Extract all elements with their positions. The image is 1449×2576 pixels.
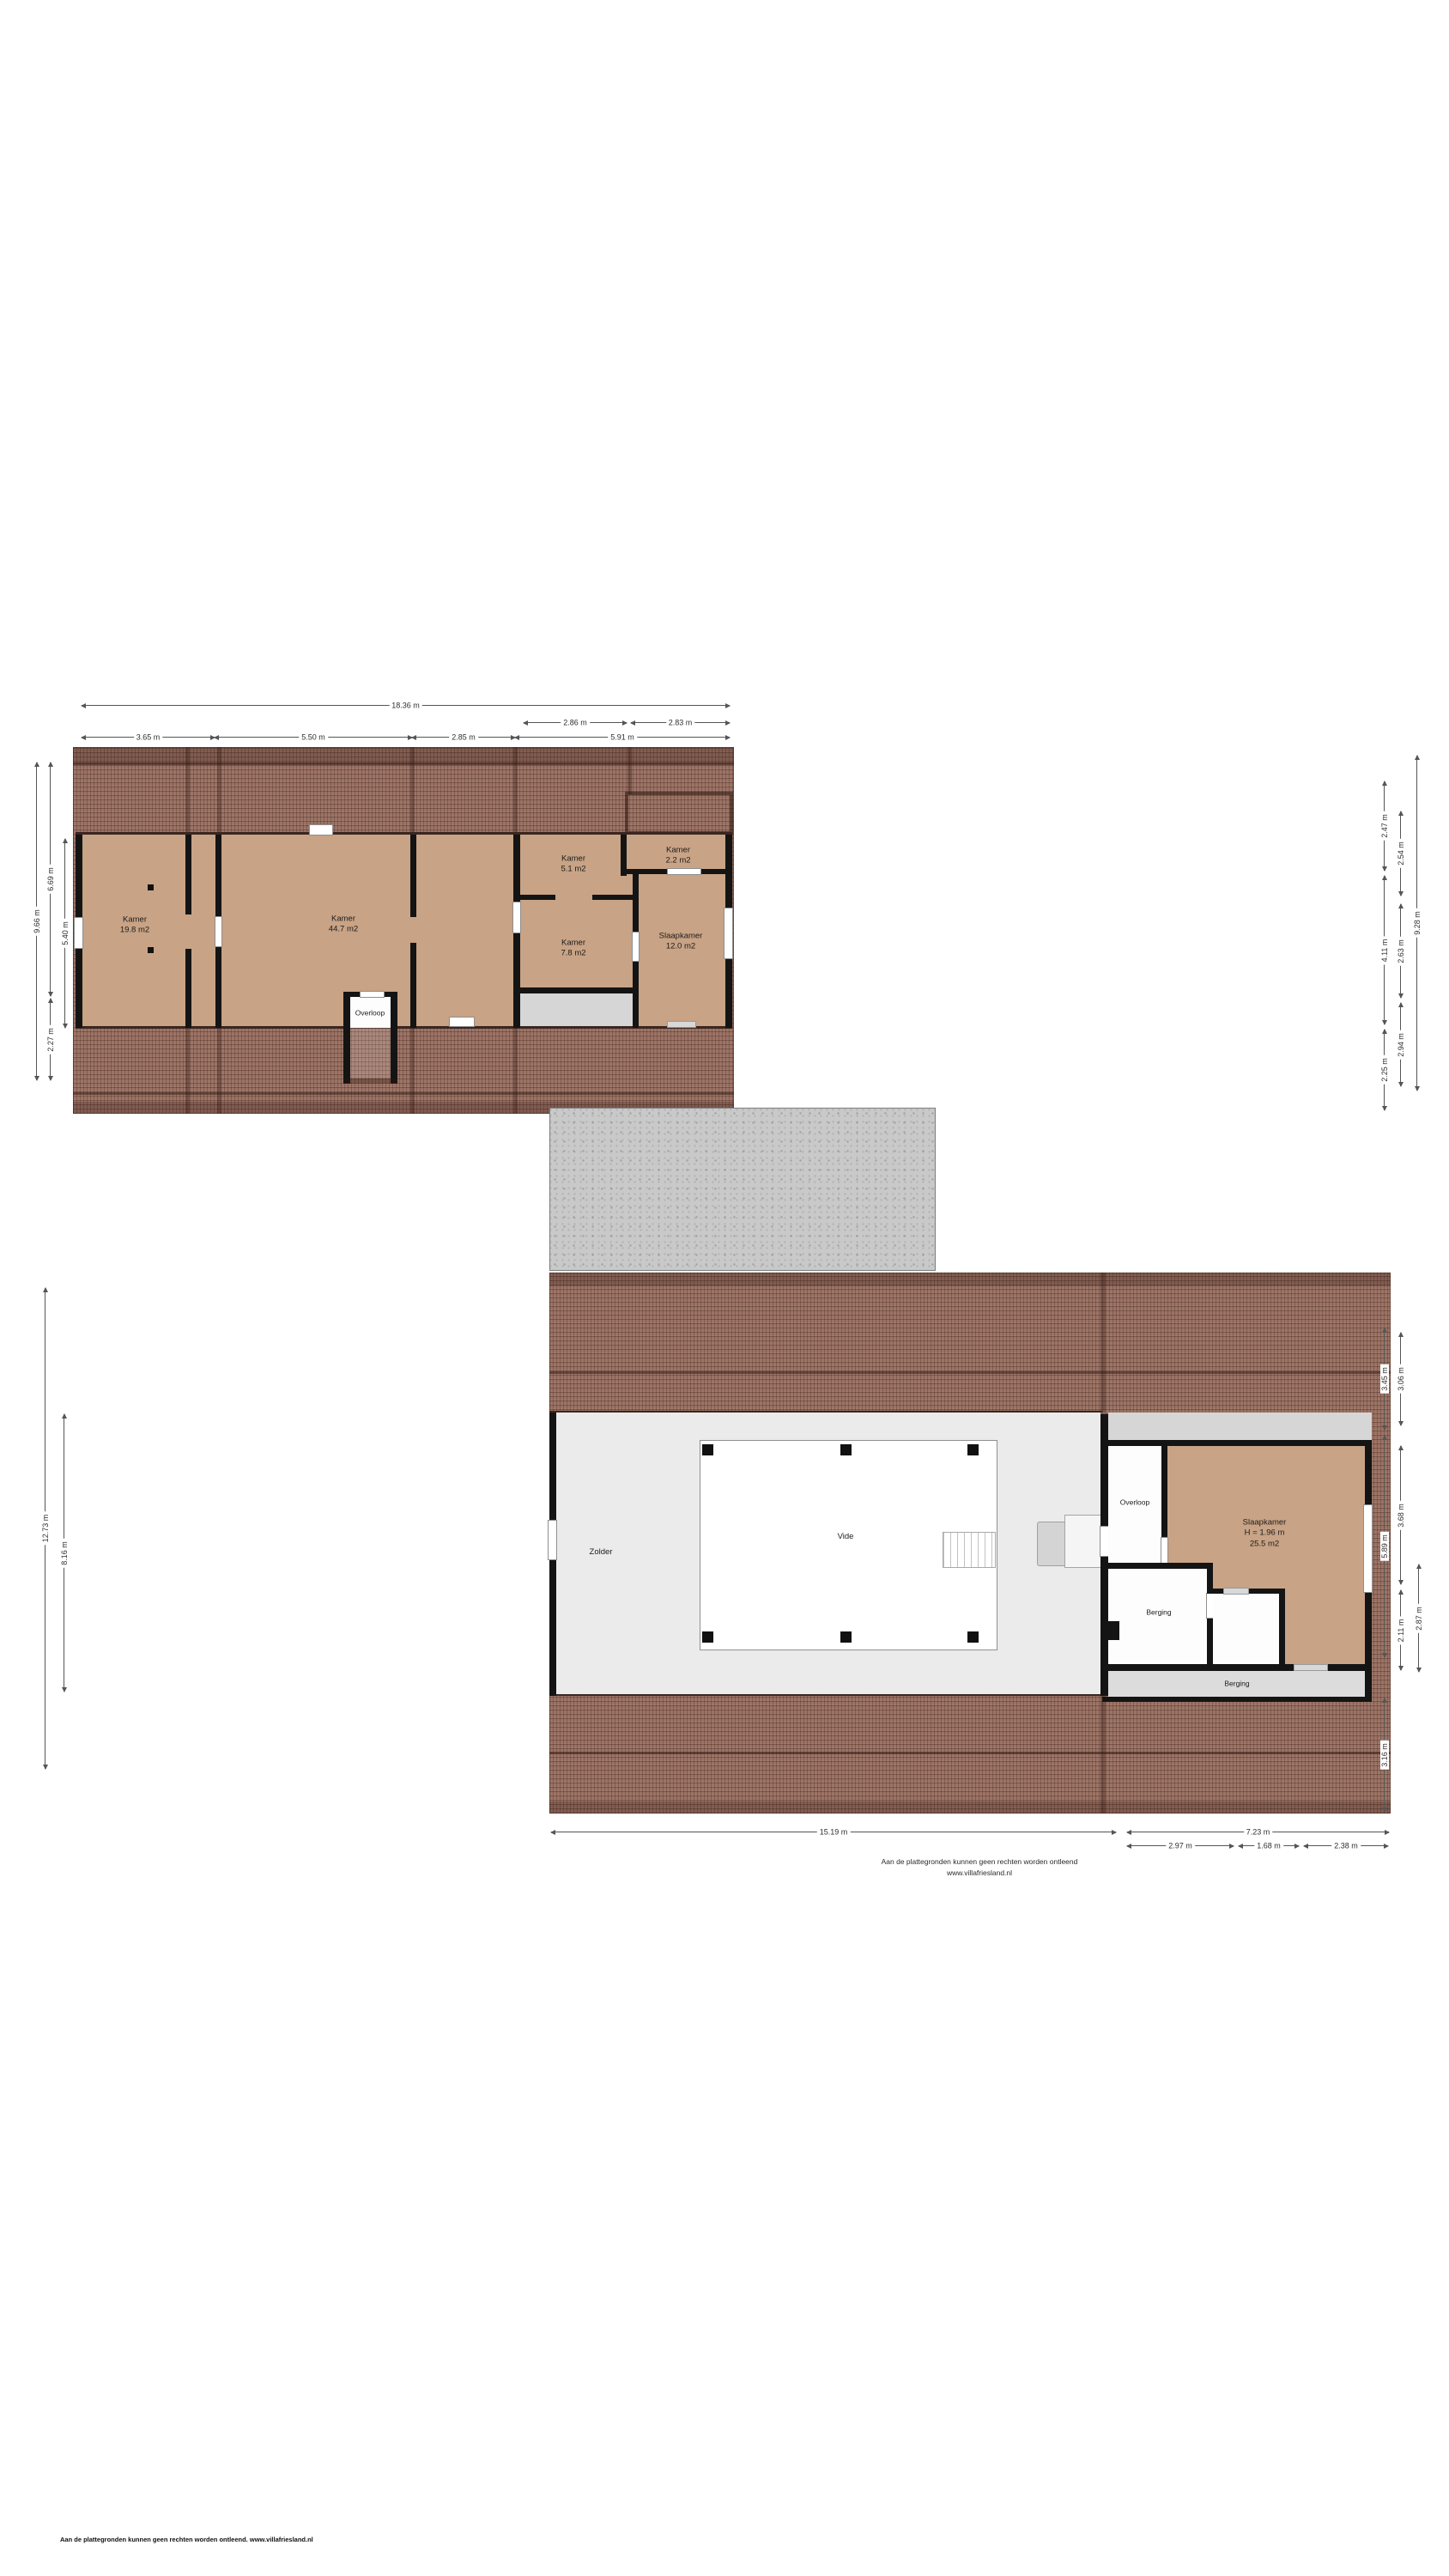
dim-285: 2.85 m [412, 737, 515, 738]
dim-816: 8.16 m [64, 1414, 64, 1692]
dim-368: 3.68 m [1400, 1446, 1401, 1584]
dim-1273: 12.73 m [45, 1288, 45, 1769]
roof-window [309, 824, 333, 835]
dim-238: 2.38 m [1304, 1845, 1388, 1846]
concrete-slab [549, 1108, 936, 1271]
wall [1365, 1664, 1372, 1702]
storage-nook [1213, 1589, 1279, 1664]
window [1363, 1504, 1373, 1593]
wall [725, 959, 732, 1028]
wall [1102, 1440, 1372, 1446]
dim-168: 1.68 m [1239, 1845, 1299, 1846]
room-label-berging1: Berging [1146, 1607, 1171, 1617]
lower-roof-bottom-shade [549, 1801, 1391, 1814]
plan-disclaimer: Aan de plattegronden kunnen geen rechten… [882, 1856, 1078, 1879]
door-threshold [1294, 1664, 1328, 1671]
hall-floor [520, 993, 633, 1026]
column-post [702, 1631, 713, 1643]
roof-seam [513, 1028, 518, 1114]
column-post [840, 1444, 852, 1455]
wall [76, 835, 82, 917]
wall [1279, 1589, 1285, 1664]
wall [513, 987, 639, 993]
column-post [148, 884, 154, 890]
interior-door [512, 902, 521, 933]
roof-seam [410, 1028, 415, 1114]
room-label-kamer-51: Kamer5.1 m2 [561, 854, 585, 876]
window [548, 1520, 557, 1560]
column-post [840, 1631, 852, 1643]
roof-seam [1100, 1273, 1106, 1413]
dim-669: 6.69 m [50, 762, 51, 996]
floor-edge [549, 1694, 1102, 1696]
roof-seam [343, 1078, 397, 1084]
roof-seam [185, 1028, 190, 1114]
lower-roof-ridge-top [549, 1371, 1391, 1374]
room-label-zolder: Zolder [590, 1547, 613, 1558]
wall [410, 835, 416, 917]
wall [1100, 1414, 1108, 1526]
wall [215, 835, 221, 916]
room-label-kamer-22: Kamer2.2 m2 [665, 846, 690, 867]
roof-seam [185, 747, 190, 835]
upper-roof-ridge-top [73, 762, 734, 765]
dim-297: 2.97 m [1127, 1845, 1234, 1846]
dormer-outline [625, 792, 733, 835]
room-label-overloop-lower: Overloop [1120, 1498, 1150, 1507]
wall [1102, 1664, 1372, 1671]
dim-411: 4.11 m [1384, 876, 1385, 1024]
wall-stub [1102, 1621, 1119, 1640]
wall [343, 992, 350, 1084]
dim-1519: 15.19 m [551, 1832, 1116, 1832]
floor-edge [549, 1411, 1102, 1413]
room-label-kamer-198: Kamer19.8 m2 [120, 915, 149, 937]
interior-door [632, 932, 640, 962]
dim-287: 2.87 m [1418, 1564, 1419, 1672]
duct-box [1064, 1515, 1102, 1568]
door-threshold [667, 1021, 696, 1028]
dim-928: 9.28 m [1416, 756, 1417, 1091]
wall [549, 1560, 556, 1696]
page-footer: Aan de plattegronden kunnen geen rechten… [60, 2536, 313, 2543]
interior-door [215, 916, 222, 947]
roof-seam [627, 747, 632, 794]
wall [549, 1413, 556, 1520]
window [74, 917, 83, 949]
dim-283: 2.83 m [631, 722, 730, 723]
annex-top-strip [1108, 1413, 1372, 1440]
wall [410, 943, 416, 1028]
room-label-overloop-upper: Overloop [355, 1008, 385, 1018]
dim-966: 9.66 m [36, 762, 37, 1080]
wall [391, 992, 397, 1084]
wall [215, 947, 221, 1028]
wall [592, 895, 633, 900]
window [667, 868, 701, 875]
column-post [967, 1631, 979, 1643]
dim-316: 3.16 m [1384, 1698, 1385, 1812]
wall [185, 949, 191, 1028]
room-label-kamer-78: Kamer7.8 m2 [561, 939, 585, 960]
wall [1102, 1697, 1372, 1702]
upper-roof-top-shade [73, 747, 734, 764]
dim-589: 5.89 m [1384, 1436, 1385, 1657]
dim-723: 7.23 m [1127, 1832, 1389, 1832]
column-post [148, 947, 154, 953]
dim-total-width: 18.36 m [82, 705, 730, 706]
dim-286: 2.86 m [524, 722, 627, 723]
roof-window [449, 1017, 475, 1027]
column-post [967, 1444, 979, 1455]
dim-550: 5.50 m [215, 737, 412, 738]
floor-edge [76, 832, 732, 835]
room-label-vide: Vide [838, 1532, 854, 1542]
dim-294: 2.94 m [1400, 1003, 1401, 1086]
wall [76, 949, 82, 1028]
dim-591: 5.91 m [515, 737, 730, 738]
upper-roof-ridge-bottom [73, 1092, 734, 1095]
lower-roof-ridge-bottom [549, 1752, 1391, 1754]
stairs [943, 1532, 996, 1568]
floorplan-page: Kamer19.8 m2 Kamer44.7 m2 Kamer5.1 m2 Ka… [0, 0, 1449, 2576]
dim-306: 3.06 m [1400, 1333, 1401, 1425]
dim-227: 2.27 m [50, 999, 51, 1080]
interior-door [360, 991, 385, 998]
wall [513, 895, 555, 900]
column-post [702, 1444, 713, 1455]
wall [1102, 1563, 1213, 1569]
dim-540: 5.40 m [64, 839, 65, 1028]
window [724, 908, 733, 959]
wall [185, 835, 191, 914]
dim-254: 2.54 m [1400, 811, 1401, 896]
roof-seam [217, 1028, 221, 1114]
room-label-slaapkamer-12: Slaapkamer12.0 m2 [659, 932, 703, 953]
dim-247: 2.47 m [1384, 781, 1385, 871]
room-label-kamer-447: Kamer44.7 m2 [329, 914, 358, 936]
room-label-slaapkamer-25: Slaapkamer H = 1.96 m 25.5 m2 [1243, 1517, 1287, 1549]
wall [621, 835, 627, 876]
chimney-shape [1037, 1522, 1068, 1566]
room-label-berging2: Berging [1224, 1679, 1249, 1688]
roof-seam [513, 747, 518, 835]
dim-263: 2.63 m [1400, 904, 1401, 998]
lower-roof-top-shade [549, 1273, 1391, 1286]
dim-365: 3.65 m [82, 737, 215, 738]
dim-211: 2.11 m [1400, 1590, 1401, 1670]
website-text: www.villafriesland.nl [882, 1868, 1078, 1879]
roof-seam [410, 747, 415, 835]
stairwell-shaft [350, 1028, 391, 1078]
roof-seam [1100, 1696, 1106, 1814]
roof-seam [217, 747, 221, 835]
dim-345: 3.45 m [1384, 1328, 1385, 1430]
disclaimer-text: Aan de plattegronden kunnen geen rechten… [882, 1856, 1078, 1868]
door-threshold [1223, 1588, 1249, 1595]
dim-225: 2.25 m [1384, 1030, 1385, 1110]
